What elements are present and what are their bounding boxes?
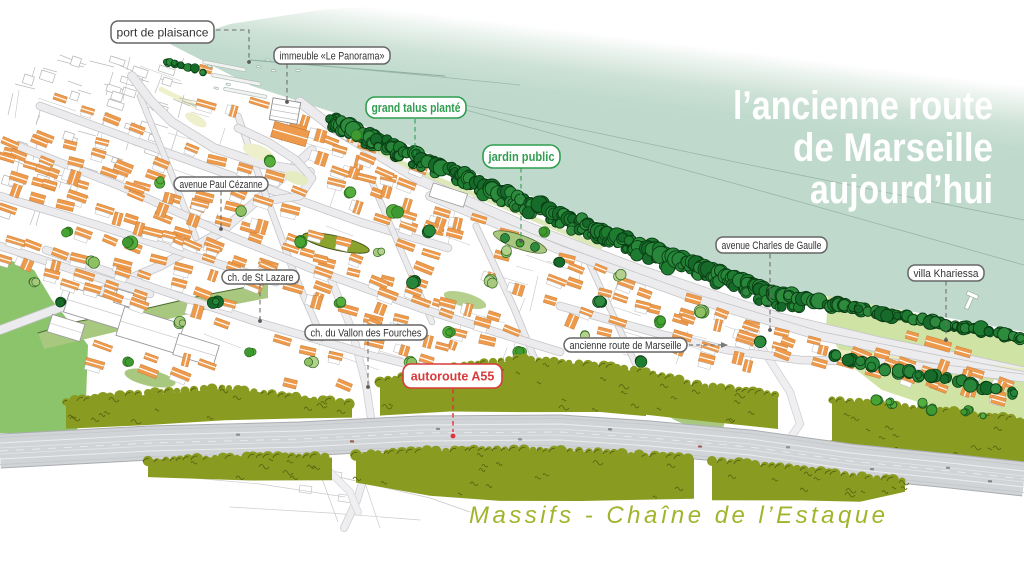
svg-text:grand talus planté: grand talus planté [372,101,461,115]
svg-text:Massifs - Chaîne de l’Estaque: Massifs - Chaîne de l’Estaque [469,502,885,529]
svg-text:jardin public: jardin public [488,149,555,164]
svg-text:port de plaisance: port de plaisance [117,25,209,39]
svg-text:autoroute A55: autoroute A55 [411,370,495,384]
svg-text:ch. du Vallon des Fourches: ch. du Vallon des Fourches [311,327,422,339]
svg-text:l’ancienne route: l’ancienne route [733,84,993,128]
svg-text:aujourd’hui: aujourd’hui [810,168,993,212]
svg-text:avenue Charles de Gaulle: avenue Charles de Gaulle [722,240,822,252]
svg-text:avenue Paul Cézanne: avenue Paul Cézanne [180,179,263,191]
svg-text:ancienne route de Marseille: ancienne route de Marseille [570,340,682,352]
svg-text:de Marseille: de Marseille [793,126,993,170]
svg-text:immeuble «Le Panorama»: immeuble «Le Panorama» [280,50,385,62]
svg-text:villa Khariessa: villa Khariessa [914,268,980,280]
svg-text:ch. de St Lazare: ch. de St Lazare [228,272,294,284]
